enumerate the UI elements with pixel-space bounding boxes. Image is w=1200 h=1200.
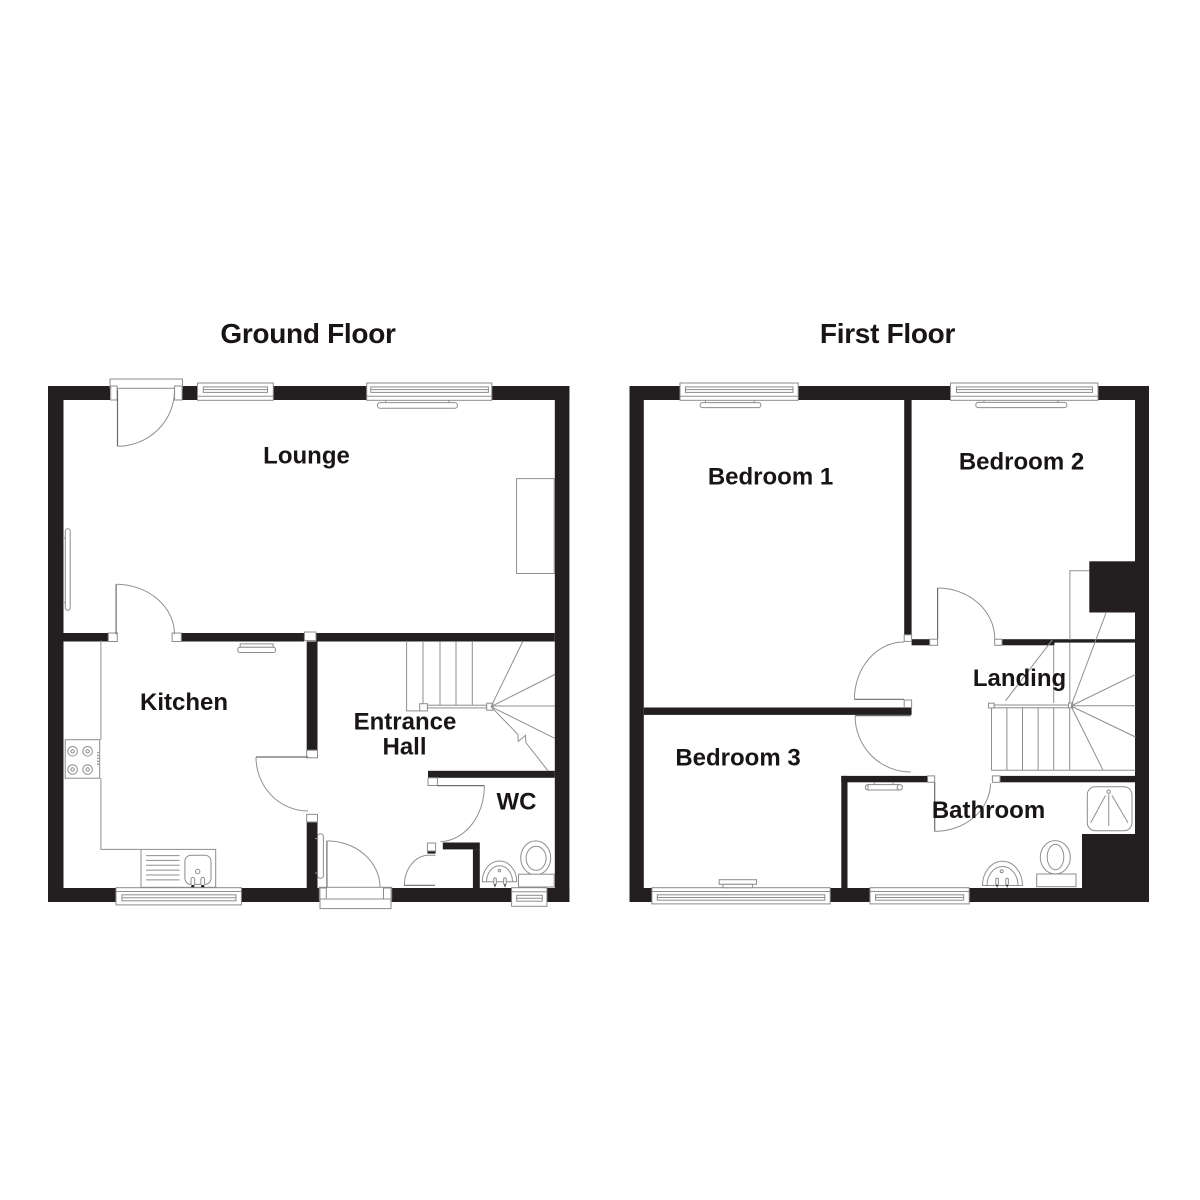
svg-text:First Floor: First Floor bbox=[820, 318, 956, 349]
svg-text:Bedroom 3: Bedroom 3 bbox=[675, 745, 800, 772]
svg-text:Kitchen: Kitchen bbox=[140, 689, 228, 716]
svg-text:Ground Floor: Ground Floor bbox=[220, 318, 396, 349]
svg-text:Bathroom: Bathroom bbox=[932, 797, 1045, 824]
svg-text:Lounge: Lounge bbox=[263, 443, 350, 470]
svg-text:WC: WC bbox=[497, 789, 537, 816]
svg-text:Entrance: Entrance bbox=[354, 709, 457, 736]
svg-text:Hall: Hall bbox=[382, 734, 426, 761]
svg-text:Landing: Landing bbox=[973, 665, 1066, 692]
svg-text:Bedroom 1: Bedroom 1 bbox=[708, 464, 833, 491]
svg-text:Bedroom 2: Bedroom 2 bbox=[959, 449, 1084, 476]
